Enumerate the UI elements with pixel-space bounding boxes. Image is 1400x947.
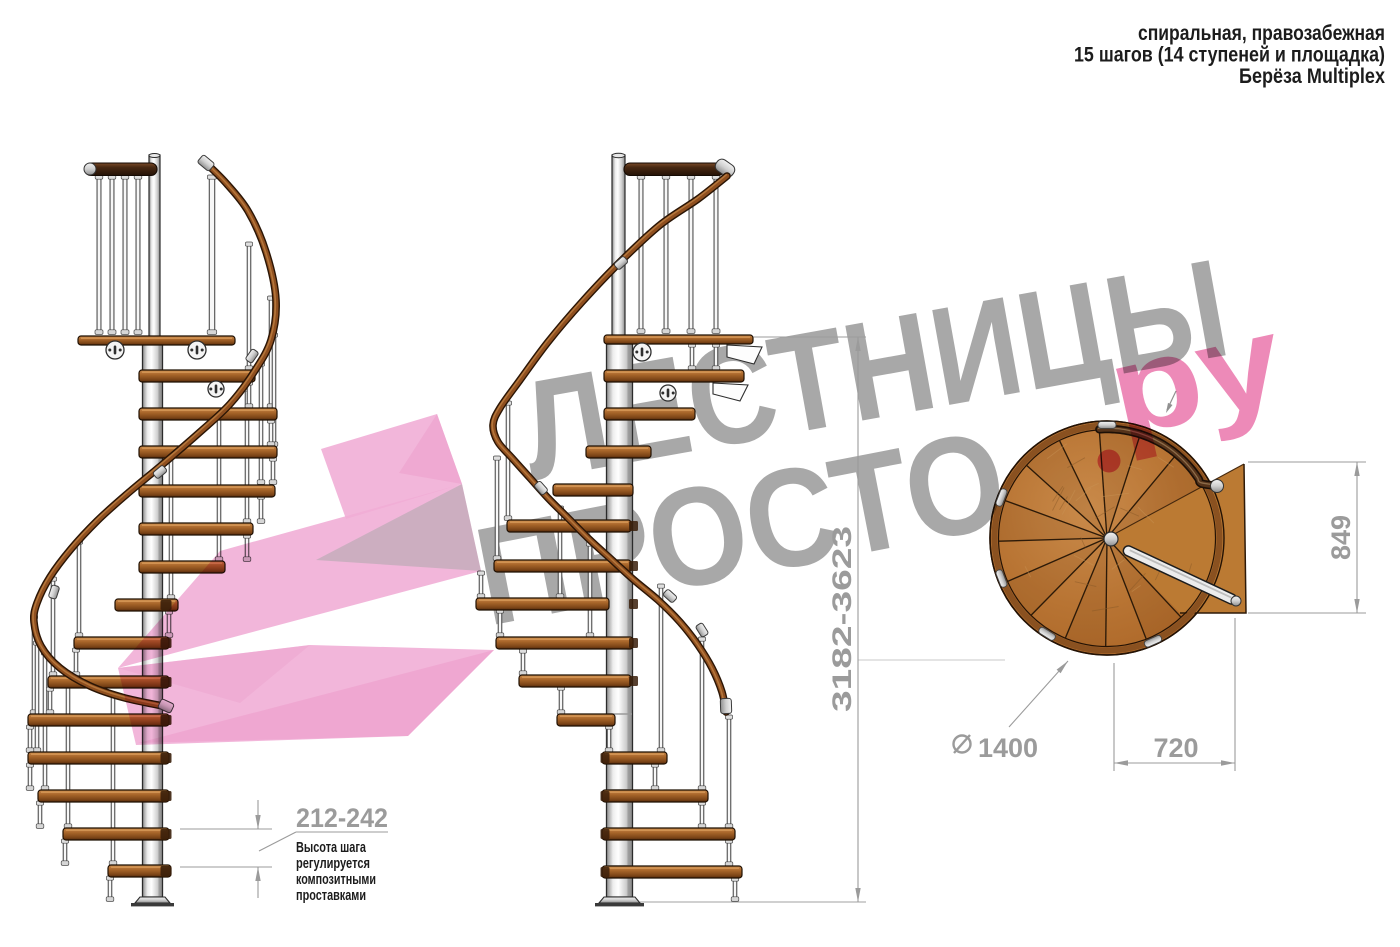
svg-text:Высота шага: Высота шага <box>296 839 366 856</box>
svg-text:композитными: композитными <box>296 871 376 888</box>
svg-text:спиральная, правозабежная: спиральная, правозабежная <box>1138 22 1385 45</box>
svg-text:720: 720 <box>1153 733 1198 763</box>
svg-text:212-242: 212-242 <box>296 803 388 833</box>
svg-text:3182-3623: 3182-3623 <box>827 526 857 712</box>
svg-text:Берёза Multiplex: Берёза Multiplex <box>1239 65 1385 88</box>
svg-text:1400: 1400 <box>978 733 1038 763</box>
svg-text:проставками: проставками <box>296 887 366 904</box>
svg-text:849: 849 <box>1326 515 1356 560</box>
svg-text:регулируется: регулируется <box>296 855 370 872</box>
svg-text:15 шагов (14 ступеней и площад: 15 шагов (14 ступеней и площадка) <box>1074 44 1385 67</box>
